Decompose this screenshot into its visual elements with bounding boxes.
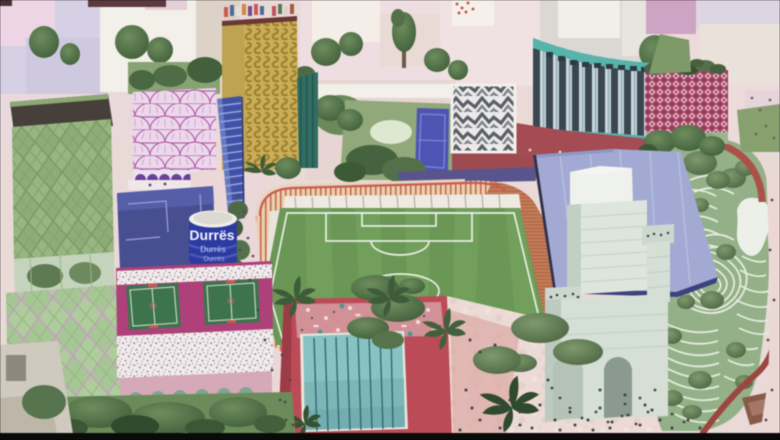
svg-text:Durrës: Durrës [203, 256, 225, 263]
svg-text:Durrës: Durrës [189, 227, 234, 243]
svg-text:Durrës: Durrës [200, 244, 226, 254]
